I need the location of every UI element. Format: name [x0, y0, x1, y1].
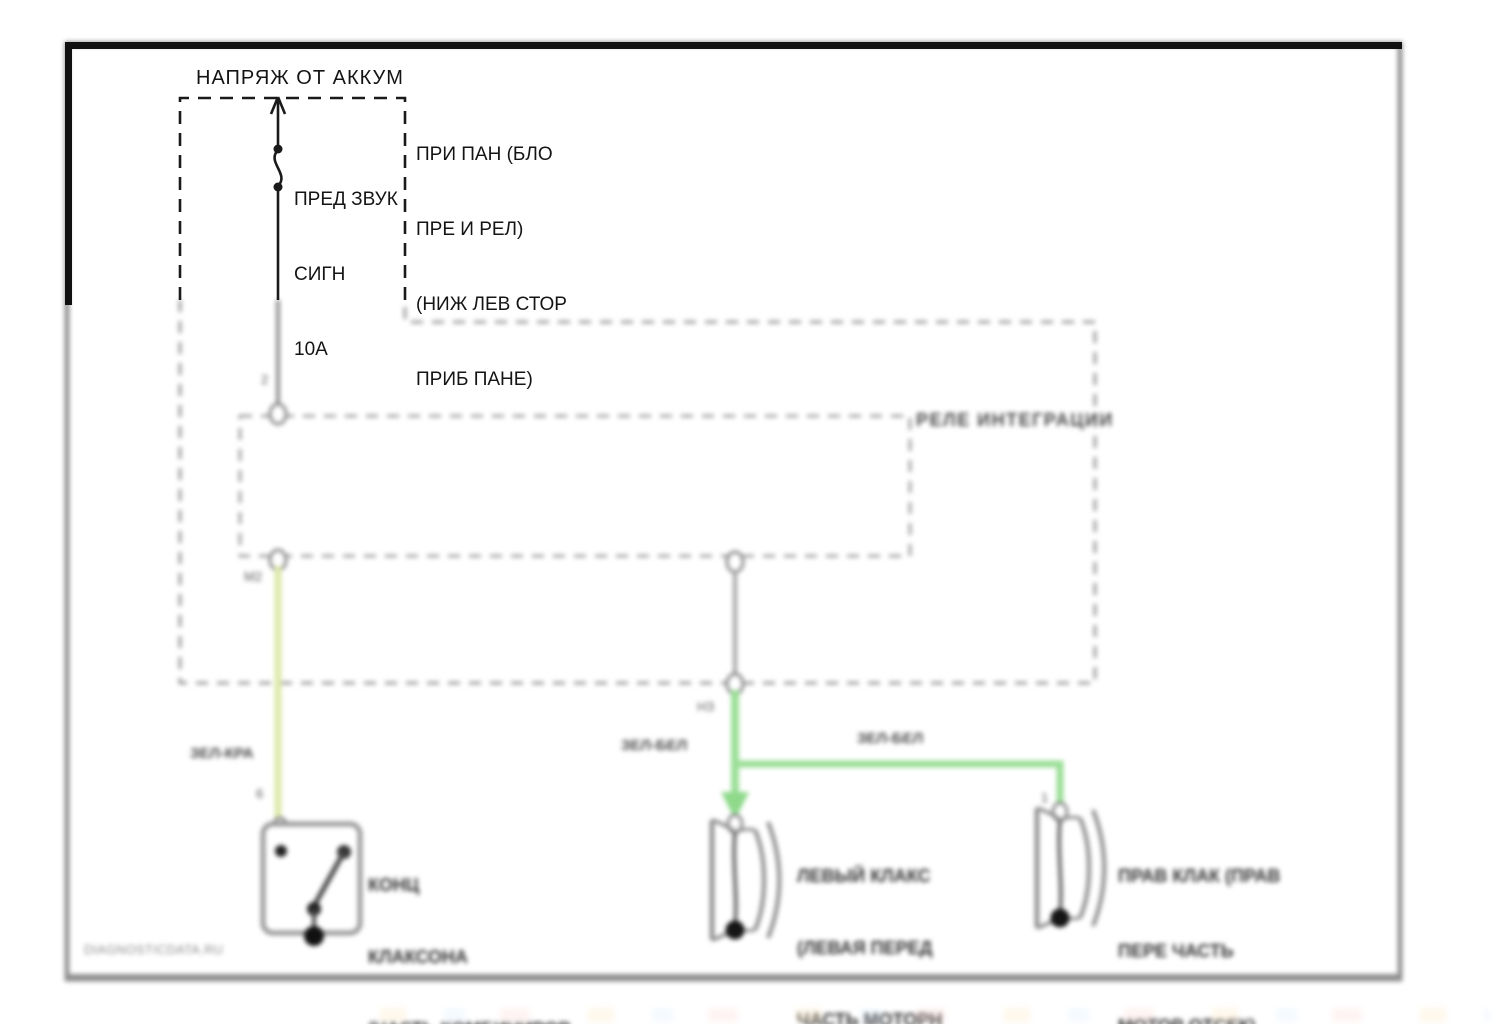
fuse-label-line2: СИГН	[294, 262, 398, 287]
panel-note-line2: ПРЕ И РЕЛ)	[416, 217, 567, 242]
wiring-diagram-canvas: РЕЛЕ ИНТЕГРАЦИИ 2 М2 НЗ 6 1 ЗЕЛ-КРА ЗЕЛ-…	[0, 0, 1500, 1024]
panel-note-line4: ПРИБ ПАНЕ)	[416, 367, 567, 392]
fuse-rating: 10А	[294, 337, 398, 362]
fuse-label: ПРЕД ЗВУК СИГН 10А	[294, 137, 398, 412]
sheet-border-left-upper	[65, 42, 72, 305]
panel-location-note: ПРИ ПАН (БЛО ПРЕ И РЕЛ) (НИЖ ЛЕВ СТОР ПР…	[416, 92, 567, 442]
fuse-label-line1: ПРЕД ЗВУК	[294, 187, 398, 212]
panel-note-line3: (НИЖ ЛЕВ СТОР	[416, 292, 567, 317]
fuse-icon	[274, 145, 283, 192]
sharp-diagram-shapes	[0, 0, 1500, 1024]
panel-note-line1: ПРИ ПАН (БЛО	[416, 142, 567, 167]
sharp-diagram-layer: НАПРЯЖ ОТ АККУМ ПРЕД ЗВУК СИГН 10А ПРИ П…	[0, 0, 1500, 1024]
diagram-title: НАПРЯЖ ОТ АККУМ	[196, 67, 404, 90]
sheet-border-top	[65, 42, 1402, 49]
bottom-artifact-strip	[380, 1008, 1490, 1022]
battery-voltage-arrow-icon	[271, 97, 285, 146]
